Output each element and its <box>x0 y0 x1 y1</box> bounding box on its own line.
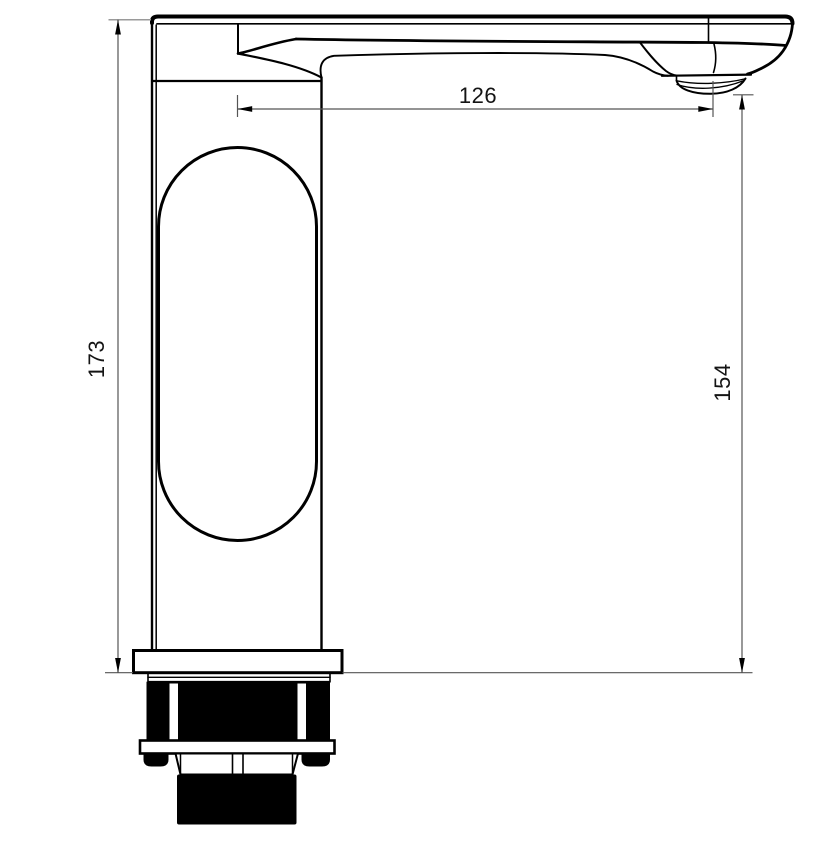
supply-pipe <box>177 775 297 825</box>
aerator-lens-line2 <box>677 79 746 84</box>
dimension-overall-height: 173 <box>84 20 151 673</box>
hex-nut <box>176 754 299 775</box>
base-plate <box>134 651 343 673</box>
arrow-up-icon <box>115 20 121 35</box>
spout-tip-facet <box>714 44 716 73</box>
handle-capsule <box>159 148 317 541</box>
arrow-left-icon <box>238 106 253 112</box>
mounting-flange <box>140 741 335 754</box>
faucet-dimension-drawing: 173 126 154 <box>0 0 815 849</box>
dim-label-126: 126 <box>459 83 497 108</box>
base-assembly <box>134 651 343 825</box>
dimension-spout-reach: 126 <box>238 81 714 117</box>
dim-label-173: 173 <box>84 340 109 378</box>
spout-right-profile <box>748 24 793 75</box>
aerator-shelf <box>662 75 751 76</box>
dim-label-154: 154 <box>710 363 735 401</box>
arrow-down-icon <box>115 658 121 673</box>
dimension-spout-height: 154 <box>343 95 754 673</box>
spout-arm-top-line <box>296 39 786 46</box>
thread-slot-left <box>170 684 179 740</box>
spout-top-edge <box>152 17 793 24</box>
arrow-right-icon <box>698 106 713 112</box>
thread-slot-right <box>298 684 307 740</box>
spout-underside <box>321 53 668 77</box>
faucet-outline <box>152 17 793 651</box>
spout-notch-upper-curve <box>238 39 296 54</box>
technical-drawing-canvas: 173 126 154 <box>0 0 815 849</box>
spout-tip-cheek <box>640 43 677 76</box>
spout-notch-lower-curve <box>238 54 322 78</box>
flange-tab-right <box>302 754 331 767</box>
arrow-up-icon <box>739 95 745 110</box>
flange-tab-left <box>144 754 169 767</box>
arrow-down-icon <box>739 658 745 673</box>
